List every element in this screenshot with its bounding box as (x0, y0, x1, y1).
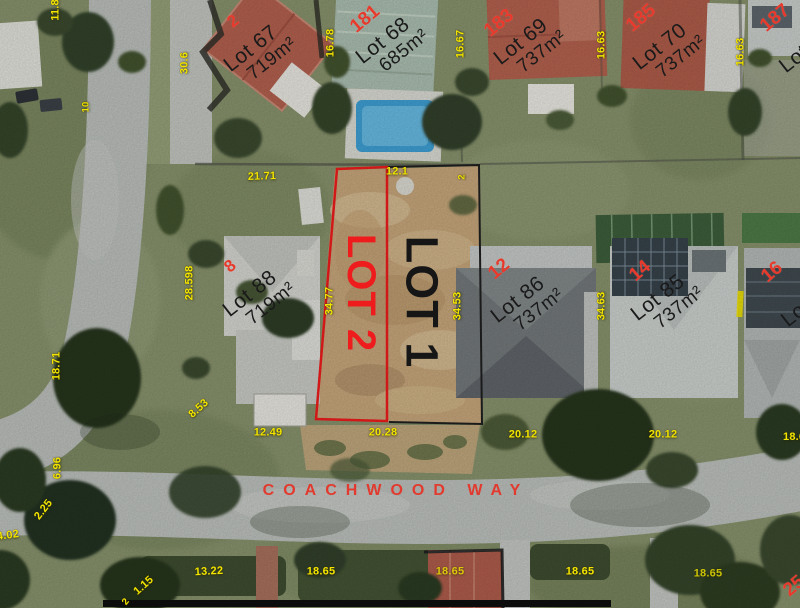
dimension-label: 16.67 (456, 30, 467, 59)
dimension-label: 30.6 (180, 52, 191, 74)
dimension-label: 18.65 (566, 567, 595, 578)
street-name: COACHWOOD WAY (263, 483, 530, 499)
dimension-label: 16.78 (326, 29, 337, 58)
dimension-label: 21.71 (248, 171, 277, 183)
dimension-label: 18.65 (436, 567, 465, 578)
dimension-label: 34.63 (597, 292, 608, 321)
dimension-label: 20.28 (369, 428, 398, 439)
parcel-label-lot1: LOT 1 (400, 236, 445, 369)
aerial-lot-map: 11.8 10 30.6 16.78 16.67 16.63 16.63 21.… (0, 0, 800, 608)
dimension-label: 34.77 (325, 287, 336, 316)
dimension-label: 6.96 (53, 457, 64, 479)
dimension-label: 28.598 (185, 266, 196, 301)
dimension-label: 20.12 (649, 430, 678, 441)
dimension-label: 18.65 (694, 569, 723, 580)
dimension-label: 18.65 (783, 432, 800, 443)
dimension-label: 20.12 (509, 430, 538, 441)
dimension-label: 11.8 (51, 0, 62, 21)
dimension-label: 16.63 (736, 38, 747, 67)
dimension-label: 12.49 (254, 428, 283, 439)
dimension-label: 16.63 (597, 31, 608, 60)
dimension-label: 12.1 (386, 167, 408, 178)
dimension-label: 18.71 (52, 352, 63, 381)
dimension-label: 13.22 (194, 566, 223, 578)
parcel-label-lot2: LOT 2 (341, 234, 381, 352)
dimension-label: 34.53 (453, 292, 464, 321)
dimension-label: 2 (457, 174, 467, 179)
dimension-label: 10 (81, 102, 91, 113)
dimension-label: 18.65 (307, 567, 336, 578)
